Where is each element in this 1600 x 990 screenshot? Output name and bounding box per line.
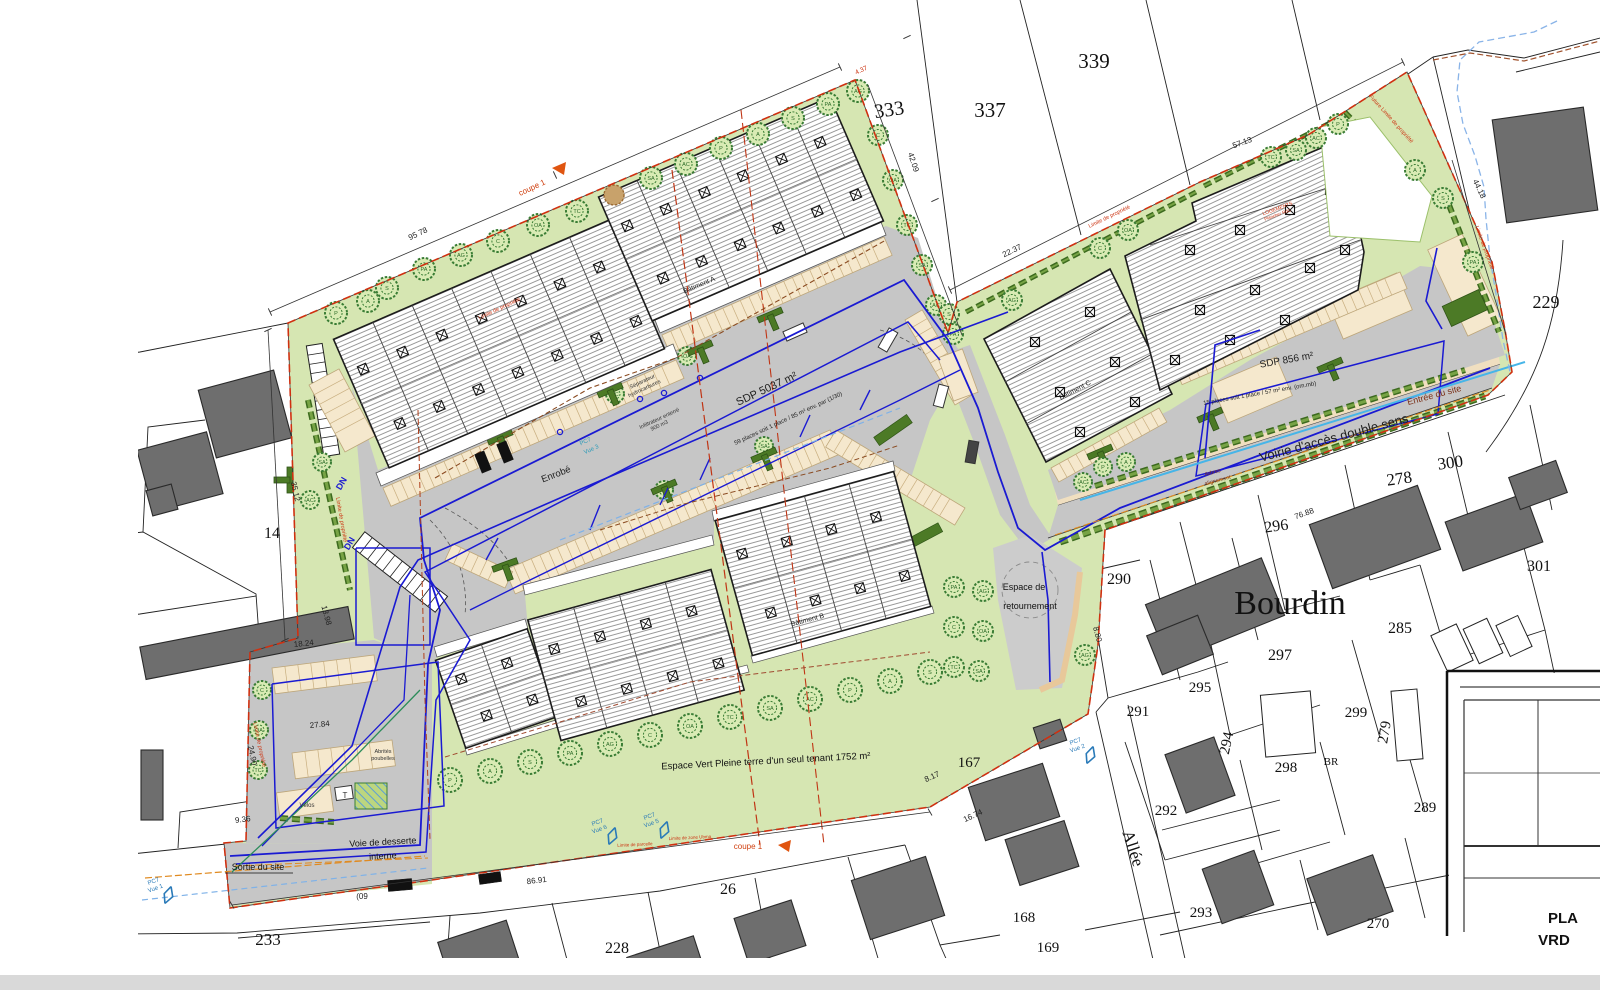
svg-text:PA: PA [567, 751, 574, 757]
svg-text:AC: AC [1312, 136, 1320, 142]
svg-text:A: A [888, 679, 892, 685]
svg-text:300: 300 [1436, 451, 1464, 473]
svg-text:A: A [366, 299, 370, 305]
svg-text:PA: PA [825, 102, 832, 108]
svg-text:AG: AG [606, 742, 614, 748]
svg-text:P: P [848, 688, 852, 694]
svg-text:290: 290 [1107, 571, 1131, 588]
svg-text:333: 333 [873, 97, 906, 123]
svg-text:TC: TC [254, 768, 261, 774]
svg-text:S: S [528, 760, 532, 766]
svg-text:295: 295 [1189, 680, 1212, 696]
svg-text:9.36: 9.36 [235, 814, 252, 825]
svg-text:14: 14 [264, 525, 280, 542]
svg-text:SA: SA [1292, 148, 1300, 154]
svg-text:S: S [1441, 196, 1445, 202]
svg-text:Espace de: Espace de [1003, 582, 1046, 592]
svg-text:OA: OA [686, 724, 694, 730]
svg-text:AC: AC [1079, 480, 1087, 486]
svg-text:C: C [1098, 246, 1102, 252]
svg-text:P: P [719, 146, 723, 152]
svg-text:270: 270 [1367, 916, 1390, 932]
svg-text:S: S [928, 670, 932, 676]
svg-text:SA: SA [975, 669, 983, 675]
svg-text:interne: interne [369, 850, 397, 861]
svg-text:OA: OA [1124, 228, 1132, 234]
svg-text:298: 298 [1275, 760, 1298, 776]
svg-text:S: S [385, 286, 389, 292]
svg-text:SA: SA [647, 176, 655, 182]
svg-text:PA: PA [421, 267, 428, 273]
svg-text:(09: (09 [356, 892, 368, 901]
svg-text:Bourdin: Bourdin [1234, 585, 1345, 622]
svg-text:Vélos: Vélos [299, 803, 314, 809]
svg-text:168: 168 [1013, 910, 1036, 926]
svg-text:C: C [496, 239, 500, 245]
svg-text:299: 299 [1345, 705, 1368, 721]
svg-text:A: A [1413, 168, 1417, 174]
svg-text:337: 337 [974, 98, 1006, 122]
svg-text:T: T [343, 791, 348, 800]
svg-text:301: 301 [1527, 558, 1551, 575]
svg-text:A: A [756, 132, 760, 138]
svg-text:Abrités: Abrités [374, 749, 391, 755]
svg-text:229: 229 [1533, 292, 1560, 312]
svg-text:SA: SA [760, 444, 768, 450]
svg-text:PLA: PLA [1548, 910, 1578, 927]
svg-text:AC: AC [682, 162, 690, 168]
svg-text:A: A [488, 769, 492, 775]
svg-text:C: C [952, 625, 956, 631]
svg-text:AG: AG [1081, 653, 1089, 659]
svg-text:poubelles: poubelles [371, 756, 395, 762]
svg-text:coupe 1: coupe 1 [734, 842, 763, 851]
svg-text:S: S [791, 116, 795, 122]
svg-text:292: 292 [1155, 803, 1178, 819]
svg-text:293: 293 [1190, 905, 1213, 921]
svg-text:C: C [260, 688, 264, 694]
svg-text:AG: AG [457, 253, 465, 259]
svg-text:289: 289 [1414, 800, 1437, 816]
svg-text:Sortie du site: Sortie du site [232, 862, 285, 872]
svg-text:S: S [947, 312, 951, 318]
svg-text:OA: OA [979, 629, 987, 635]
svg-text:AG: AG [979, 589, 987, 595]
svg-text:233: 233 [255, 930, 281, 949]
svg-text:TC: TC [726, 715, 733, 721]
svg-text:P: P [1336, 122, 1340, 128]
svg-text:P: P [334, 311, 338, 317]
svg-text:retournement: retournement [1003, 601, 1057, 611]
svg-text:VRD: VRD [1538, 932, 1570, 949]
svg-text:PA: PA [1470, 260, 1477, 266]
svg-text:PA: PA [951, 585, 958, 591]
svg-text:P: P [448, 778, 452, 784]
svg-text:278: 278 [1385, 467, 1413, 489]
svg-text:339: 339 [1078, 49, 1110, 73]
svg-text:OA: OA [534, 223, 542, 229]
svg-text:AG: AG [1008, 298, 1016, 304]
svg-text:297: 297 [1268, 647, 1292, 664]
svg-text:TC: TC [573, 209, 580, 215]
svg-text:296: 296 [1263, 516, 1289, 536]
svg-text:A: A [1124, 460, 1128, 466]
svg-text:BR: BR [1324, 756, 1339, 768]
svg-text:167: 167 [958, 755, 981, 771]
svg-text:TC: TC [950, 665, 957, 671]
svg-text:169: 169 [1037, 940, 1060, 956]
svg-text:26: 26 [720, 881, 736, 898]
svg-text:C: C [648, 733, 652, 739]
svg-text:228: 228 [605, 940, 629, 957]
svg-text:P: P [1101, 465, 1105, 471]
svg-text:291: 291 [1127, 704, 1150, 720]
svg-text:SA: SA [318, 460, 326, 466]
svg-text:285: 285 [1388, 620, 1412, 637]
svg-text:AC: AC [306, 498, 314, 504]
svg-text:SA: SA [766, 706, 774, 712]
svg-text:TC: TC [1267, 155, 1274, 161]
